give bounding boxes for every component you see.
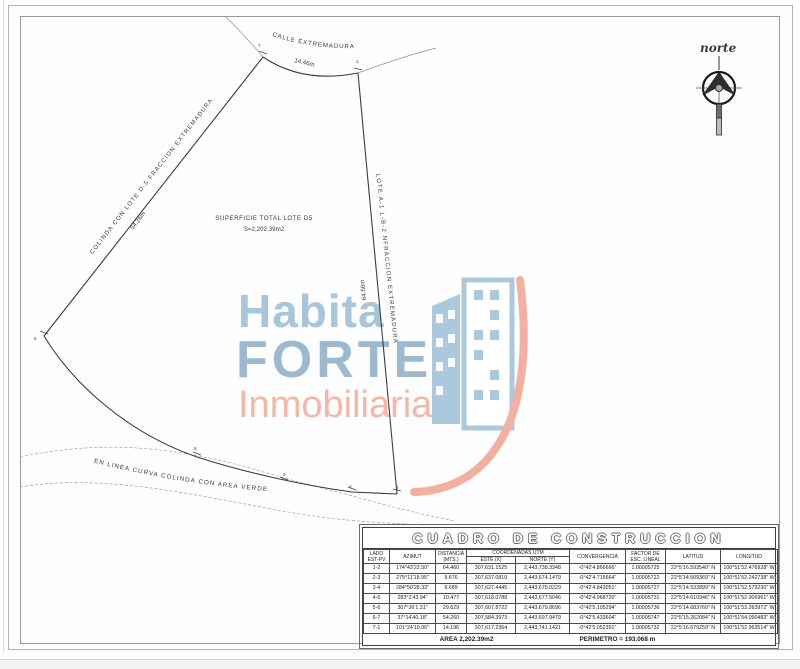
cell-norte: 2,443,675.0229 <box>516 584 570 594</box>
vertex-2: 2 <box>396 485 399 490</box>
cell-este: 307,631.1525 <box>467 564 516 574</box>
cell-convergencia: -0°42'4.866666" <box>570 564 626 574</box>
cell-longitud: 100°51'52.242738" W <box>721 574 778 584</box>
cell-latitud: 22°5'14.683760" N <box>666 604 721 614</box>
table-row: 5-6 307°36'1.31" 29.629 307,607.8722 2,4… <box>364 604 778 614</box>
table-row: 6-7 37°14'40.18" 54.260 307,584.3973 2,4… <box>364 614 778 624</box>
header-dist-line2: (MTS.) <box>437 557 465 563</box>
cell-azimut: 283°2'43.94" <box>390 594 436 604</box>
cell-norte: 2,443,679.8696 <box>516 604 570 614</box>
norte-label: norte <box>700 41 737 55</box>
cell-lado: 3-4 <box>364 584 390 594</box>
street-length-label: 14.46m <box>294 57 316 68</box>
col-header-lado: LADO EST-PV <box>364 550 390 564</box>
survey-plan-sheet: Habita FORTE Inmobiliaria <box>0 0 800 669</box>
south-boundary-label: EN LINEA CURVA COLINDA CON AREA VERDE <box>93 458 268 494</box>
cell-longitud: 100°51'52.579230" W <box>721 584 778 594</box>
cell-distancia: 10.477 <box>436 594 467 604</box>
col-header-coordenadas: COORDENADAS UTM <box>467 550 570 557</box>
cell-este: 307,584.3973 <box>467 614 516 624</box>
header-factor-line2: ESC. LINEAL <box>627 557 664 563</box>
vertex-4: 4 <box>283 472 286 477</box>
cell-lado: 7-1 <box>364 624 390 634</box>
table-row: 7-1 101°24'19.06" 14.196 307,617.2364 2,… <box>364 624 778 634</box>
street-name-label: CALLE EXTREMADURA <box>271 31 354 50</box>
cell-distancia: 29.629 <box>436 604 467 614</box>
construction-table: CUADRO DE CONSTRUCCION LADO EST-PV AZIMU… <box>362 527 776 646</box>
header-dist-line1: DISTANCIA <box>437 551 465 557</box>
west-length-label: 54.26m <box>129 211 147 232</box>
cell-convergencia: -0°42'5.052391" <box>570 624 626 634</box>
cell-factor: 1.00005732 <box>626 624 666 634</box>
perimeter-total: PERIMETRO = 193.068 m <box>570 634 778 646</box>
cell-lado: 6-7 <box>364 614 390 624</box>
cell-convergencia: -0°42'5.105294" <box>570 604 626 614</box>
cell-latitud: 22°5'14.610946" N <box>666 594 721 604</box>
vertex-5: 5 <box>194 446 197 451</box>
cell-latitud: 22°5'16.679259" N <box>666 624 721 634</box>
cell-factor: 1.00005727 <box>626 584 666 594</box>
cell-convergencia: -0°42'4.843051" <box>570 584 626 594</box>
cell-lado: 1-2 <box>364 564 390 574</box>
cell-este: 307,618.0788 <box>467 594 516 604</box>
cell-convergencia: -0°42'4.968720" <box>570 594 626 604</box>
table-row: 3-4 284°50'28.33" 9.689 307,627.4445 2,4… <box>364 584 778 594</box>
table-row: 4-5 283°2'43.94" 10.477 307,618.0788 2,4… <box>364 594 778 604</box>
cell-distancia: 14.196 <box>436 624 467 634</box>
header-factor-line1: FACTOR DE <box>627 551 664 557</box>
cell-factor: 1.00005747 <box>626 614 666 624</box>
west-boundary-label: COLINDA CON LOTE D-5 FRACCION EXTREMADUR… <box>89 97 215 255</box>
cell-distancia: 9.689 <box>436 584 467 594</box>
cell-longitud: 100°51'52.963514" W <box>721 624 778 634</box>
cell-norte: 2,443,677.5046 <box>516 594 570 604</box>
cell-azimut: 37°14'40.18" <box>390 614 436 624</box>
north-arrow: norte <box>696 41 742 135</box>
cell-factor: 1.00005731 <box>626 594 666 604</box>
east-boundary-label: LOTE A-1 L-B-2 NFRACCION EXTREMADURA <box>374 174 398 345</box>
table-footer-row: AREA 2,202.39m2 PERIMETRO = 193.068 m <box>364 634 778 646</box>
cell-azimut: 275°11'18.95" <box>390 574 436 584</box>
cell-factor: 1.00005722 <box>626 574 666 584</box>
col-header-norte: NORTE (Y) <box>516 557 570 564</box>
cell-norte: 2,443,738.3348 <box>516 564 570 574</box>
cell-convergencia: -0°42'5.433604" <box>570 614 626 624</box>
cell-este: 307,617.2364 <box>467 624 516 634</box>
vertex-numbers: 7 1 6 5 4 3 2 <box>34 43 399 490</box>
lot-boundary <box>44 57 397 494</box>
cell-lado: 4-5 <box>364 594 390 604</box>
cell-norte: 2,443,741.1421 <box>516 624 570 634</box>
col-header-distancia: DISTANCIA (MTS.) <box>436 550 467 564</box>
col-header-latitud: LATITUD <box>666 550 721 564</box>
table-row: 2-3 275°11'18.95" 9.676 307,637.0810 2,4… <box>364 574 778 584</box>
col-header-convergencia: CONVERGENCIA <box>570 550 626 564</box>
cell-distancia: 9.676 <box>436 574 467 584</box>
table-title: CUADRO DE CONSTRUCCION <box>363 528 775 549</box>
vertex-ticks <box>40 51 401 491</box>
cell-este: 307,637.0810 <box>467 574 516 584</box>
cell-azimut: 174°43'22.50" <box>390 564 436 574</box>
col-header-este: ESTE (X) <box>467 557 516 564</box>
cell-este: 307,607.8722 <box>467 604 516 614</box>
cell-factor: 1.00005736 <box>626 604 666 614</box>
cell-factor: 1.00005725 <box>626 564 666 574</box>
cell-azimut: 284°50'28.33" <box>390 584 436 594</box>
cell-azimut: 307°36'1.31" <box>390 604 436 614</box>
cell-este: 307,627.4445 <box>467 584 516 594</box>
col-header-longitud: LONGITUD <box>721 550 778 564</box>
cell-azimut: 101°24'19.06" <box>390 624 436 634</box>
compass-icon <box>696 56 742 135</box>
table-row: 1-2 174°43'22.50" 64.460 307,631.1525 2,… <box>364 564 778 574</box>
vertex-7: 7 <box>258 43 261 48</box>
cell-latitud: 22°5'15.262084" N <box>666 614 721 624</box>
cell-longitud: 100°51'52.906961" W <box>721 594 778 604</box>
cell-distancia: 54.260 <box>436 614 467 624</box>
cell-latitud: 22°5'14.509369" N <box>666 574 721 584</box>
cell-longitud: 100°51'54.090483" W <box>721 614 778 624</box>
cell-latitud: 22°5'14.533899" N <box>666 584 721 594</box>
cell-longitud: 100°51'53.263972" W <box>721 604 778 614</box>
surface-title: SUPERFICIE TOTAL LOTE D5 <box>215 215 312 222</box>
east-length-label: 64.56m <box>359 279 368 300</box>
col-header-azimut: AZIMUT <box>390 550 436 564</box>
area-total: AREA 2,202.39m2 <box>364 634 570 646</box>
cell-latitud: 22°5'16.593540" N <box>666 564 721 574</box>
cell-convergencia: -0°42'4.715664" <box>570 574 626 584</box>
cell-norte: 2,443,697.9479 <box>516 614 570 624</box>
cell-norte: 2,443,674.1479 <box>516 574 570 584</box>
cell-lado: 2-3 <box>364 574 390 584</box>
header-lado-line2: EST-PV <box>365 557 388 563</box>
surface-value: S=2,202.39m2 <box>244 226 285 233</box>
cell-distancia: 64.460 <box>436 564 467 574</box>
cell-longitud: 100°51'52.476928" W <box>721 564 778 574</box>
cell-lado: 5-6 <box>364 604 390 614</box>
vertex-6: 6 <box>34 336 37 341</box>
vertex-1: 1 <box>356 59 359 64</box>
col-header-factor: FACTOR DE ESC. LINEAL <box>626 550 666 564</box>
